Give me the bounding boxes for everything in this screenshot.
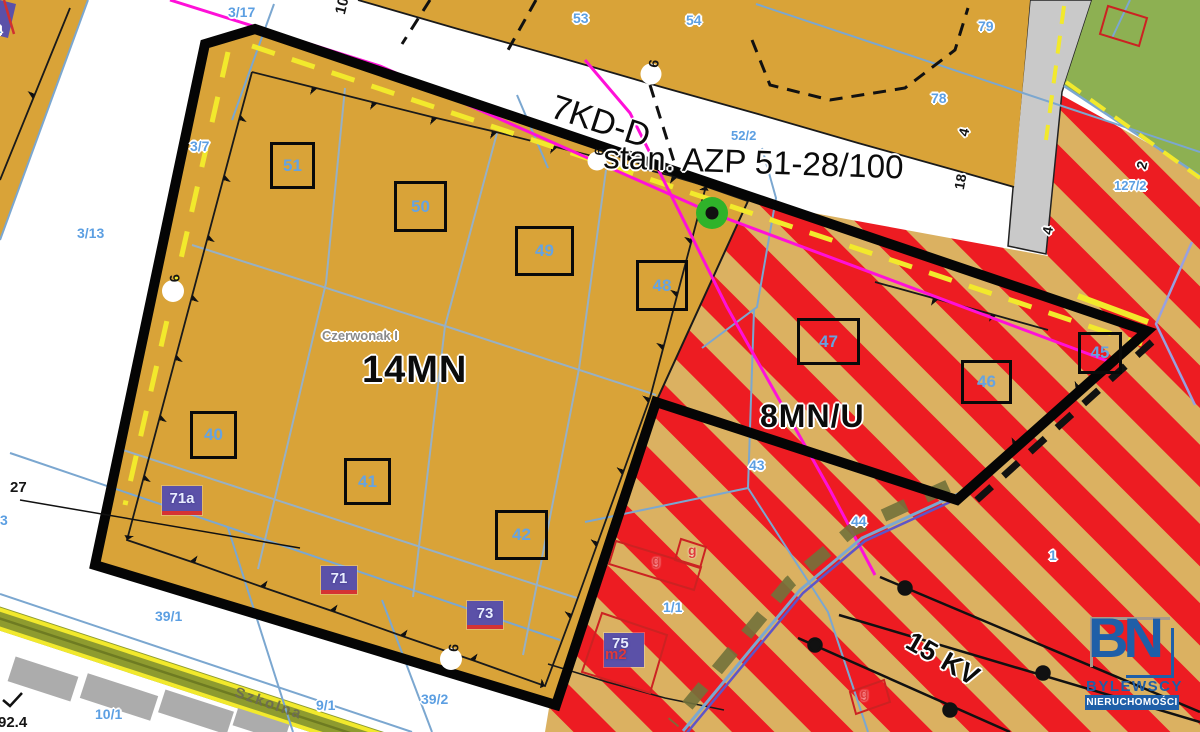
zone-label-8mnu: 8MN/U (760, 398, 865, 435)
zoning-map-canvas[interactable]: 14MN 8MN/U 7KD-D stan. AZP 51-28/100 15 … (0, 0, 1200, 732)
plot-51-label: 51 (283, 156, 302, 176)
plot-square-50: 50 (394, 181, 447, 232)
plot-square-40: 40 (190, 411, 237, 459)
parcel-9-1: 9/1 (316, 697, 335, 713)
gas-label-3: g (860, 685, 869, 701)
parcel-3-14: 3/14 (0, 22, 1, 38)
plot-41-label: 41 (358, 472, 377, 492)
gas-label-1: g (652, 552, 661, 568)
marker-75: 75 m2 (604, 633, 644, 667)
parcel-10-1: 10/1 (95, 706, 122, 722)
plot-46-label: 46 (977, 372, 996, 392)
logo-bracket-blue-v (1171, 628, 1174, 678)
plot-45-label: 45 (1091, 343, 1110, 363)
parcel-39-1: 39/1 (155, 608, 182, 624)
logo-subtitle: NIERUCHOMOŚCI (1085, 695, 1179, 710)
zone-label-14mn: 14MN (362, 349, 467, 392)
gas-label-2: g (688, 542, 697, 558)
plot-49-label: 49 (535, 241, 554, 261)
parcel-79: 79 (978, 18, 994, 34)
logo-initials: BN (1088, 610, 1159, 666)
survey-point-green (696, 197, 728, 229)
parcel-44: 44 (851, 513, 867, 529)
plot-square-45: 45 (1078, 332, 1122, 374)
parcel-78: 78 (931, 90, 947, 106)
plot-square-42: 42 (495, 510, 548, 560)
plot-42-label: 42 (512, 525, 531, 545)
parcel-3-13: 3/13 (77, 225, 104, 241)
plot-47-label: 47 (819, 332, 838, 352)
parcel-127-2: 127/2 (1114, 178, 1147, 193)
parcel-1-1: 1/1 (663, 599, 682, 615)
plot-48-label: 48 (653, 276, 672, 296)
plot-square-47: 47 (797, 318, 860, 365)
logo-name: BYLEWSCY (1086, 678, 1183, 695)
dim-6-left: 6 (166, 274, 183, 283)
parcel-1: 1 (1049, 547, 1057, 563)
parcel-39-2: 39/2 (421, 691, 448, 707)
plot-square-41: 41 (344, 458, 391, 505)
label-locality: Czerwonak I (322, 328, 398, 343)
marker-71-label: 71 (331, 570, 348, 587)
parcel-3-17: 3/17 (228, 4, 255, 20)
parcel-43: 43 (749, 457, 765, 473)
plot-square-46: 46 (961, 360, 1012, 404)
marker-71: 71 (321, 566, 357, 594)
marker-75-sub: m2 (605, 646, 627, 663)
marker-71a-label: 71a (169, 490, 194, 507)
parcel-52-2: 52/2 (731, 128, 756, 143)
dim-6-bottom: 6 (445, 643, 462, 652)
parcel-3: 3 (0, 512, 8, 528)
elevation-92-4: 92.4 (0, 714, 27, 731)
marker-71a: 71a (162, 486, 202, 515)
plot-50-label: 50 (411, 197, 430, 217)
parcel-3-7: 3/7 (190, 138, 209, 154)
agency-logo: BN BYLEWSCY NIERUCHOMOŚCI (1080, 608, 1184, 714)
plot-40-label: 40 (204, 425, 223, 445)
plot-square-48: 48 (636, 260, 688, 311)
parcel-53: 53 (573, 10, 589, 26)
dim-27: 27 (10, 479, 27, 496)
marker-73: 73 (467, 601, 503, 629)
dim-18: 18 (951, 173, 969, 191)
parcel-54: 54 (686, 12, 702, 28)
plot-square-49: 49 (515, 226, 574, 276)
plot-square-51: 51 (270, 142, 315, 189)
marker-73-label: 73 (477, 605, 494, 622)
